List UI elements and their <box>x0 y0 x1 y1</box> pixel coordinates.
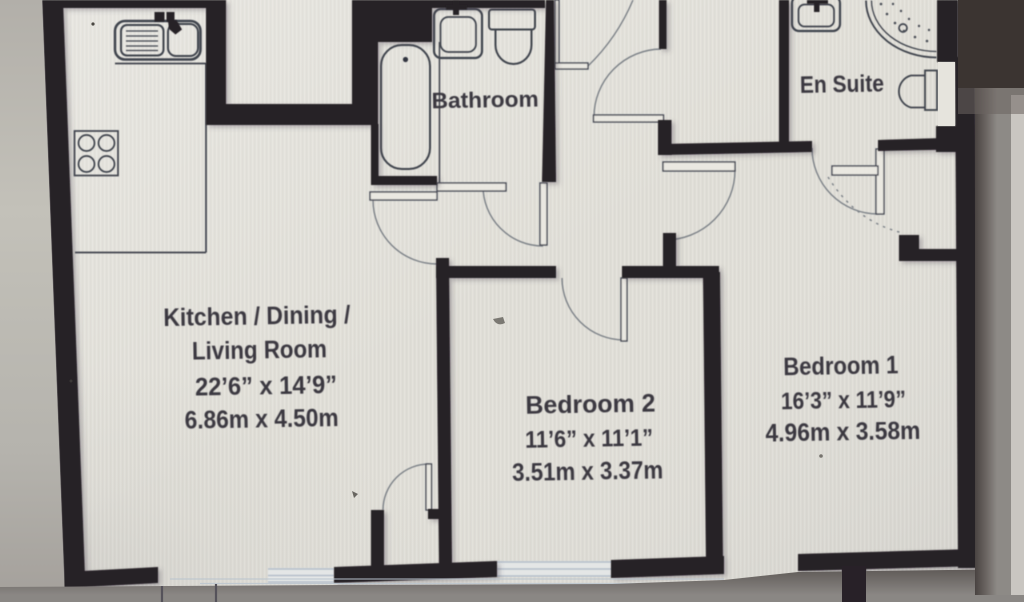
svg-text:6.86m x 4.50m: 6.86m x 4.50m <box>184 404 338 435</box>
svg-text:22’6” x 14’9”: 22’6” x 14’9” <box>195 371 337 401</box>
svg-text:Living Room: Living Room <box>192 335 327 365</box>
svg-text:Bathroom: Bathroom <box>431 86 538 113</box>
svg-text:4.96m x 3.58m: 4.96m x 3.58m <box>765 417 920 448</box>
svg-text:Bedroom 2: Bedroom 2 <box>525 390 655 420</box>
svg-text:Kitchen / Dining /: Kitchen / Dining / <box>163 301 351 332</box>
svg-text:Bedroom 1: Bedroom 1 <box>783 351 899 381</box>
svg-text:16’3” x 11’9”: 16’3” x 11’9” <box>781 386 906 415</box>
svg-text:En Suite: En Suite <box>800 70 884 98</box>
svg-text:3.51m x 3.37m: 3.51m x 3.37m <box>512 456 663 487</box>
svg-text:11’6” x 11’1”: 11’6” x 11’1” <box>525 425 653 454</box>
